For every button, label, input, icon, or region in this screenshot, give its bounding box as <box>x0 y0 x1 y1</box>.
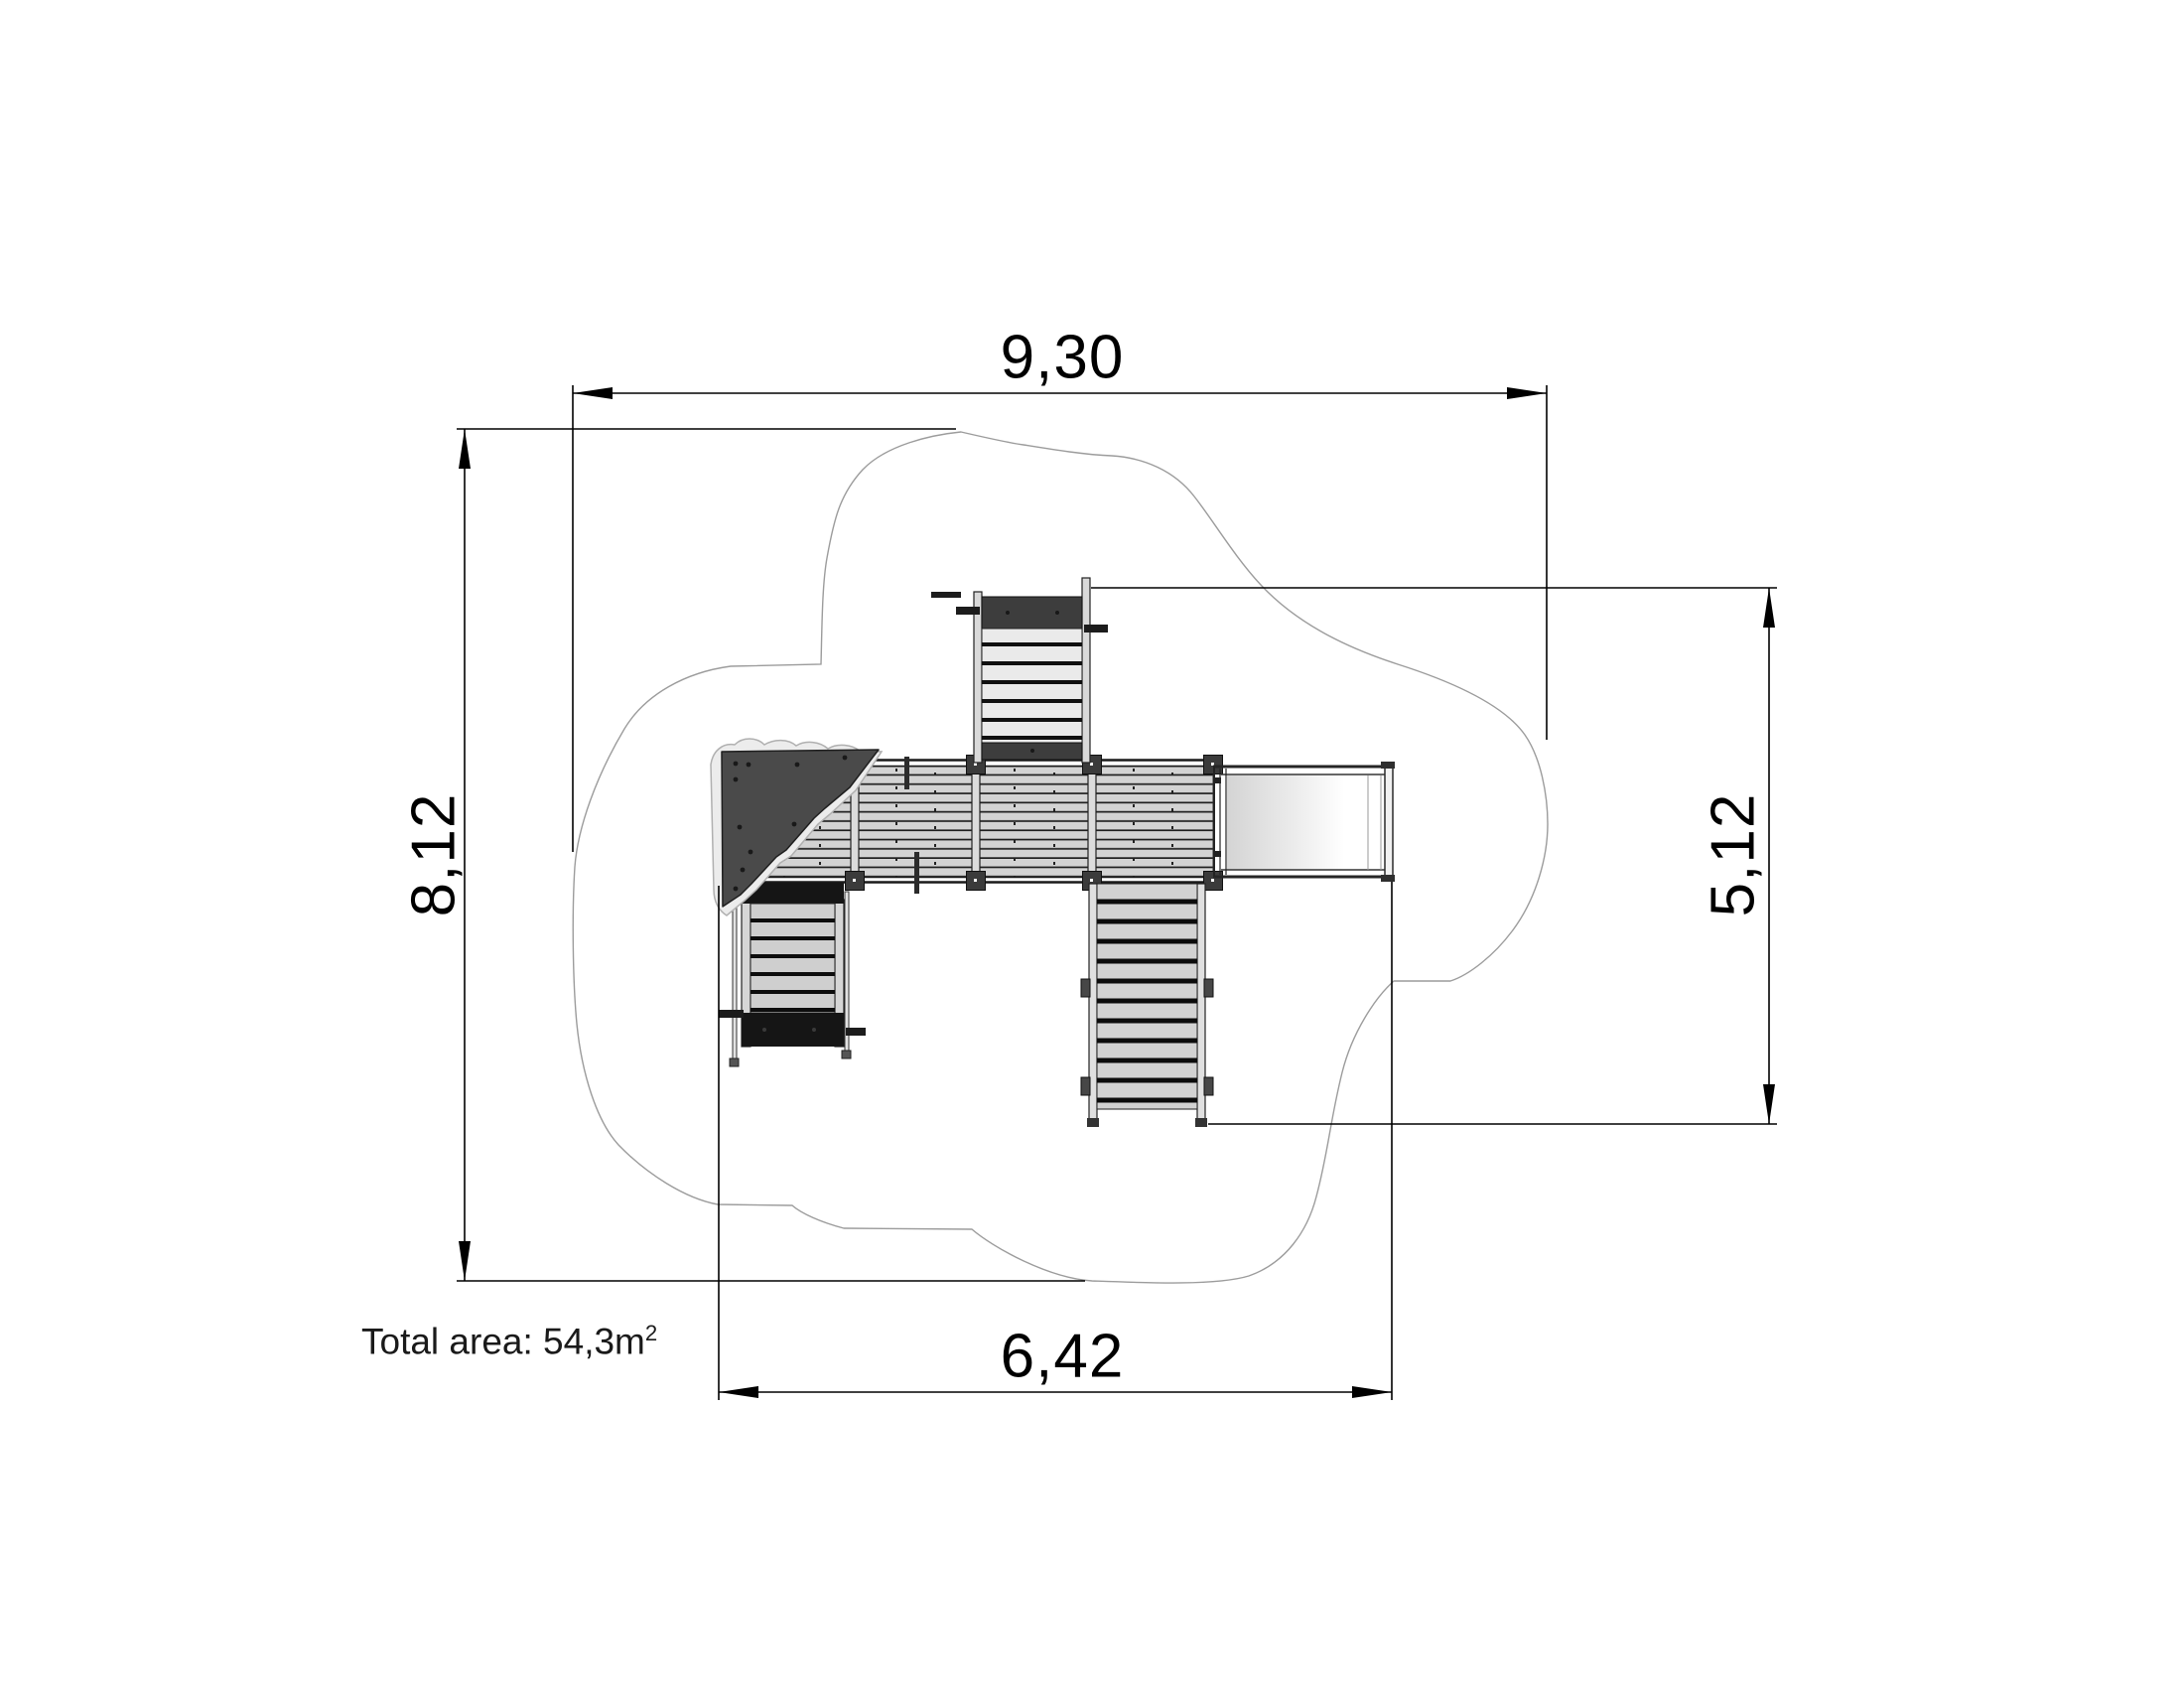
slide-entry-dot <box>1215 851 1221 857</box>
top-ladder <box>931 578 1108 763</box>
stairs-bracket <box>1204 979 1213 997</box>
technical-drawing-canvas: 9,30 8,12 5,12 6,42 Total area: 54,3m2 <box>0 0 2184 1688</box>
stairs-bracket <box>1081 1077 1090 1095</box>
ladder-rail <box>1082 578 1090 763</box>
plan-view-drawing <box>0 0 2184 1688</box>
stairs-bracket <box>1204 1077 1213 1095</box>
stairs-foot <box>1087 1118 1099 1127</box>
arrowhead-left <box>573 387 613 399</box>
ladder-handle-bar <box>931 592 961 598</box>
ladder-handle-bar <box>956 607 980 615</box>
ladder-handle-bar <box>719 1010 744 1018</box>
ladder-handle-bar <box>1084 625 1108 633</box>
stairs-treads <box>1097 884 1197 1109</box>
arrowhead-right <box>1352 1386 1392 1398</box>
ladder-foot <box>730 1058 739 1066</box>
deck-divider <box>1088 760 1096 883</box>
arrowhead-down <box>1763 1084 1775 1124</box>
corner-post <box>846 872 865 891</box>
dimension-label-equipment-depth: 5,12 <box>1699 793 1769 917</box>
slide-entry-dot <box>1215 777 1221 783</box>
dimension-label-overall-width: 9,30 <box>1001 323 1125 393</box>
arrowhead-up <box>1763 588 1775 628</box>
total-area-superscript: 2 <box>645 1321 657 1345</box>
deck-divider <box>972 760 980 883</box>
total-area-text: Total area: 54,3m <box>361 1321 645 1361</box>
play-structure <box>711 578 1395 1127</box>
arrowhead-left <box>719 1386 758 1398</box>
ladder-handle-bar <box>846 1028 866 1036</box>
arrowhead-up <box>459 429 471 469</box>
slide-end-cap <box>1381 875 1395 882</box>
ladder-bottom-band <box>742 1013 844 1047</box>
ladder-top-band <box>982 597 1082 629</box>
slide-end-cap <box>1381 762 1395 769</box>
stairs <box>1081 884 1213 1127</box>
post-stub <box>904 757 909 789</box>
total-area-label: Total area: 54,3m2 <box>361 1321 657 1362</box>
stairs-bracket <box>1081 979 1090 997</box>
arrowhead-right <box>1507 387 1547 399</box>
lower-left-ladder <box>719 883 866 1066</box>
slide <box>1213 762 1395 882</box>
arrowhead-down <box>459 1241 471 1281</box>
dimension-label-overall-depth: 8,12 <box>399 793 470 917</box>
ladder-foot <box>842 1051 851 1058</box>
slide-end-bar <box>1385 767 1393 877</box>
corner-post <box>967 872 986 891</box>
ladder-rail <box>974 592 982 763</box>
dimension-label-equipment-width: 6,42 <box>1001 1322 1125 1392</box>
slide-bed <box>1227 775 1384 870</box>
ladder-outer-rail <box>733 892 737 1062</box>
post-stub <box>914 852 919 894</box>
stairs-foot <box>1195 1118 1207 1127</box>
